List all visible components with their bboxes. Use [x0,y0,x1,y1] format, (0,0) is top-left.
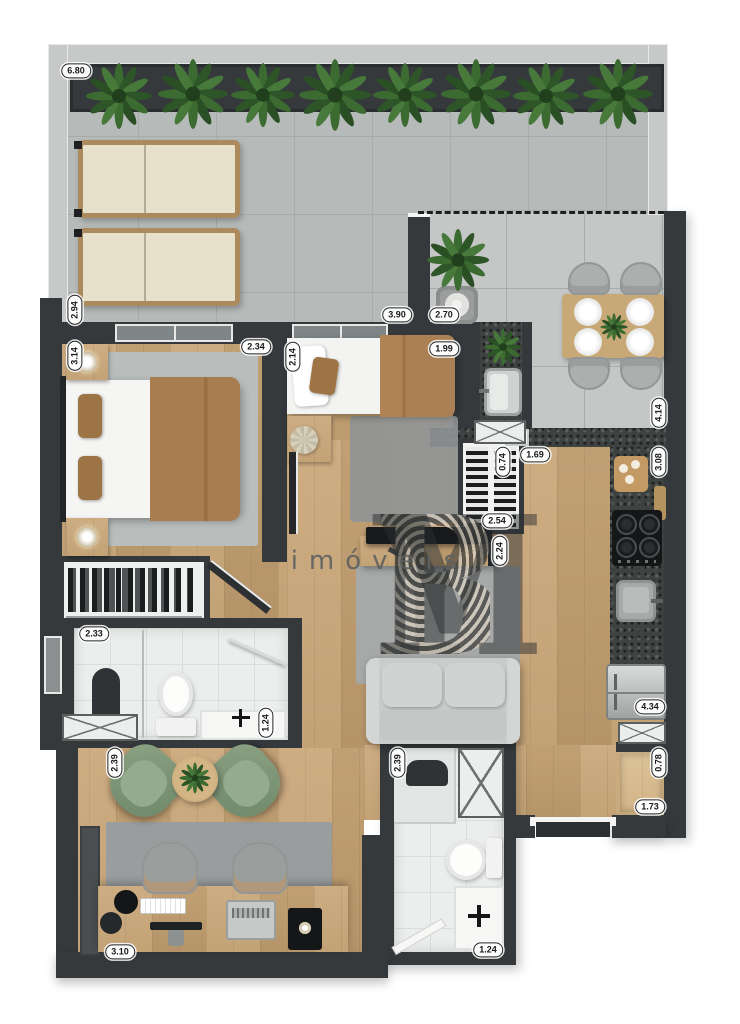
sofa-seat [380,710,506,740]
coffee-cup [299,922,311,934]
planter-plant-icon [440,58,512,130]
coffee-table-plant-icon [179,762,211,794]
coverage-dashed-line [418,211,664,214]
desk-lamp [100,890,140,940]
bathroom1-glass-partition [142,630,144,738]
armchair-cushion [216,753,277,814]
printer-slot [232,908,270,918]
terrace-plant-icon [426,228,490,292]
dimension-badge: 4.14 [651,398,666,428]
dimension-badge: 2.39 [107,748,122,778]
planter-plant-icon [230,62,296,128]
tall-cabinet [80,826,100,956]
double-bed [64,380,240,518]
dinner-plate [626,298,654,326]
knob-row [618,560,656,563]
fridge-handle [614,674,617,690]
shower-towel [406,760,448,786]
wall-laundry-right [522,322,532,430]
bed-blanket [150,377,240,521]
entry-door-mat [536,822,610,837]
planter-plant-icon [582,58,654,130]
sun-lounger [78,140,240,218]
dinner-plate [626,328,654,356]
coffee-machine [288,908,322,950]
dimension-badge: 3.14 [67,341,82,371]
planter-plant-icon [512,62,580,130]
faucet-cross [477,905,481,927]
bathroom1-cabinet [62,714,138,741]
dimension-badge: 2.24 [492,536,507,566]
floor-plan: YBM imóveis 6.802.943.142.342.141.993.90… [0,0,740,1024]
wall-left-office [56,744,78,960]
dinner-plate [574,328,602,356]
dimension-badge: 2.14 [285,342,300,372]
laundry-tank-sink [484,368,522,416]
bed-pillow [78,394,102,438]
dimension-badge: 2.33 [79,626,109,641]
sun-lounger [78,228,240,306]
planter-plant-icon [157,58,229,130]
watermark-tagline: imóveis [280,548,469,574]
lounger-foot [74,229,82,237]
window-mullion [174,326,176,340]
closet [58,556,210,624]
dimension-badge: 2.70 [429,307,459,322]
dinner-plate [574,298,602,326]
armchair-cushion [113,753,174,814]
cooktop [612,510,662,566]
lounger-foot [74,141,82,149]
faucet-cross [239,709,242,727]
tank-basin [490,374,508,410]
table-centerpiece-plant-icon [600,313,628,341]
burner [639,514,660,535]
dimension-badge: 1.24 [258,708,273,738]
dimension-badge: 2.34 [241,339,271,354]
sink-basin [623,587,649,613]
closet-rail [66,616,202,618]
wall-bedroom-divider [262,322,287,562]
printer [226,900,276,940]
planter-plant-icon [85,62,153,130]
dimension-badge: 3.10 [105,944,135,959]
bathroom1-window [44,636,62,694]
table-lamp [77,527,97,547]
dimension-badge: 6.80 [61,63,91,78]
toilet [444,838,502,882]
toilet-tank [156,718,196,736]
keyboard [140,898,186,914]
dimension-badge: 1.24 [473,942,503,957]
fridge-handle [614,694,617,710]
wall-right [664,211,686,838]
dimension-badge: 1.69 [520,447,550,462]
wall-office-right [362,835,386,978]
lamp-base [100,912,122,934]
dimension-badge: 1.73 [635,799,665,814]
kitchen-cabinet [618,722,666,744]
planter-plant-icon [298,58,372,132]
dimension-badge: 3.90 [382,307,412,322]
lounger-foot [74,209,82,217]
monitor [150,922,202,930]
bedroom2-door-leaf [289,452,298,534]
planter-plant-icon [372,62,438,128]
egg [625,475,634,484]
dimension-badge: 0.74 [495,447,510,477]
sink-faucet [651,599,663,603]
dimension-badge: 1.99 [429,341,459,356]
egg [631,460,640,469]
knit-pouf [290,426,318,454]
bed-pillow [78,456,102,500]
toilet [154,672,198,740]
wall-hall-bottom-right [612,815,666,838]
hanging-clothes [68,568,200,612]
cutting-board [614,456,648,492]
shower-bench [92,668,120,716]
dimension-badge: 2.39 [390,748,405,778]
bathroom2-vanity [454,886,504,950]
office-chair [232,842,288,894]
burner [616,537,637,558]
toilet-tank [486,838,502,878]
bedroom1-window [115,324,233,342]
monitor-stand [168,930,184,946]
headboard [60,376,66,522]
lounger-seam [144,145,146,213]
bathroom2-cabinet [458,748,504,818]
lounger-seam [144,233,146,301]
office-chair [142,842,198,894]
parapet-left [48,44,68,324]
dimension-badge: 0.78 [651,748,666,778]
toilet-bowl [159,672,193,716]
dimension-badge: 2.54 [482,513,512,528]
dimension-badge: 3.08 [651,447,666,477]
kitchen-sink [616,580,656,622]
tank-faucet [479,389,489,393]
burner [616,514,637,535]
lamp-shade [114,890,138,914]
burner [639,537,660,558]
laundry-cabinet [474,420,526,444]
laundry-plant-icon [484,328,522,366]
egg [619,464,628,473]
dimension-badge: 2.94 [67,295,82,325]
toilet-bowl [446,840,486,880]
dimension-badge: 4.34 [635,699,665,714]
bed-pillow-brown [309,356,340,395]
